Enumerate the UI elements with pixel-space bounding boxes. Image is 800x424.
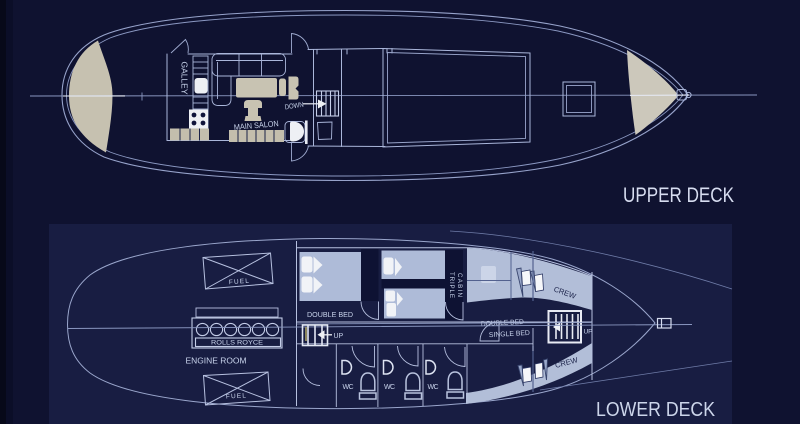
- svg-text:ENGINE ROOM: ENGINE ROOM: [186, 356, 247, 366]
- svg-text:DOUBLE BED: DOUBLE BED: [307, 312, 353, 319]
- svg-text:FUEL: FUEL: [226, 392, 247, 400]
- svg-text:WC: WC: [384, 384, 395, 391]
- svg-text:TRIPLE: TRIPLE: [448, 272, 455, 298]
- svg-text:ROLLS ROYCE: ROLLS ROYCE: [211, 340, 264, 347]
- svg-text:WC: WC: [343, 384, 354, 391]
- svg-text:CABIN: CABIN: [456, 273, 463, 297]
- svg-text:WC: WC: [428, 384, 439, 391]
- svg-text:GALLEY: GALLEY: [180, 62, 189, 96]
- svg-text:UPPER DECK: UPPER DECK: [623, 184, 734, 207]
- svg-text:UP: UP: [334, 333, 344, 340]
- svg-text:LOWER DECK: LOWER DECK: [596, 398, 715, 421]
- svg-text:FUEL: FUEL: [229, 278, 250, 286]
- svg-text:UP: UP: [583, 329, 592, 336]
